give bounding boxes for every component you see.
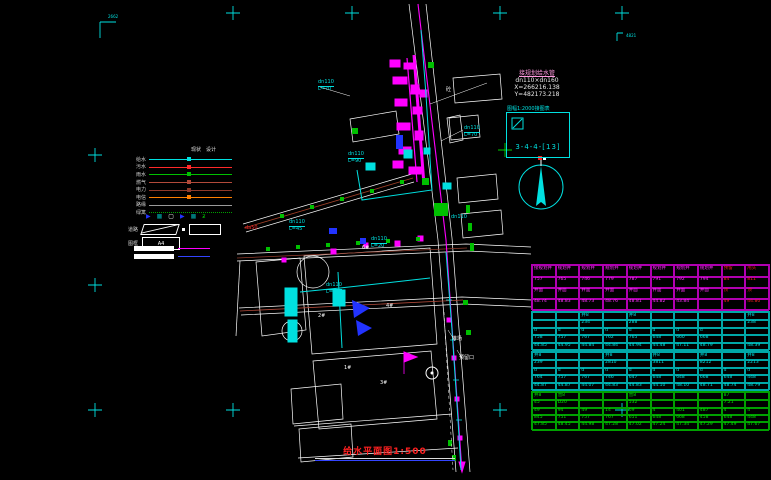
table-cell: 48.74 — [532, 298, 556, 311]
map-label-line: da50 — [245, 226, 258, 232]
legend-line-sample — [149, 190, 232, 191]
legend-row: 电信 — [128, 194, 232, 202]
map-label: dn110L=70 — [464, 126, 480, 138]
map-label: dn110L=90 — [348, 152, 364, 164]
annotation-line: dn110×dn160 — [478, 77, 596, 84]
legend-magenta-line — [178, 248, 210, 249]
legend-line-sample — [149, 174, 232, 175]
table-cell: 47.67 — [745, 421, 769, 430]
table-cell: 48.10 — [674, 382, 698, 391]
table-cell — [698, 298, 722, 311]
table-cell: 44.98 — [579, 421, 603, 430]
table-row: 4994491469440148744 — [532, 407, 769, 414]
map-label-line: 3# — [380, 381, 387, 387]
table-cell: 44.84 — [603, 342, 627, 351]
table-row: 48.7448.8348.7348.7648.8144.8243.844944.… — [532, 298, 769, 309]
legend-label: 电力 — [128, 187, 149, 193]
legend-label: 污水 — [128, 164, 149, 170]
map-label: dn110L=45 — [289, 220, 305, 232]
table-cell: 48.73 — [579, 298, 603, 311]
table-row: 47.8548.4544.9847.2847.0247.2447.3447.29… — [532, 421, 769, 428]
map-label: 3# — [380, 381, 387, 387]
map-label-line: 2# — [318, 314, 325, 320]
legend-header-existing: 现状 — [191, 146, 201, 153]
legend-label: 燃气 — [128, 180, 149, 186]
table-cell: 47.85 — [532, 421, 556, 430]
legend-row: 污水 — [128, 164, 232, 172]
table-cell: 48.45 — [556, 421, 580, 430]
table-row: 44.8544.9544.8444.8444.9444.4847.1148.79… — [532, 342, 769, 349]
table-row: 接规划井规划井规划井规划井规划井规划井规划井规划井预留甩头 — [532, 265, 769, 276]
table-row: 845751757767651648668458648448 — [532, 414, 769, 421]
map-label-line: 预留口 — [459, 356, 474, 362]
map-label-line: 堆场 — [452, 337, 462, 343]
map-label-line: L=45 — [326, 290, 342, 296]
table-cell: 44.84 — [579, 342, 603, 351]
legend-label: 电信 — [128, 195, 149, 201]
equals-mark — [182, 228, 185, 231]
cad-canvas[interactable]: 2662 4821 接规划给水管 dn110×dn160 X=266216.13… — [0, 0, 771, 480]
legend-header-design: 设计 — [206, 146, 216, 153]
box-symbol-icon: ▢ — [168, 214, 174, 220]
table-cell: 44.07 — [579, 382, 603, 391]
legend-marker — [187, 157, 191, 161]
vegetation-symbols — [266, 62, 474, 461]
grid-box-title: 图幅1:2000接图表 — [507, 105, 569, 112]
map-label-line: 1# — [344, 366, 351, 372]
table-cell: 47.24 — [651, 421, 675, 430]
map-label-line: 砼 — [446, 88, 451, 94]
legend-marker — [187, 195, 191, 199]
map-label-line: L=90 — [348, 159, 364, 165]
road-legend-label: 道路 — [128, 226, 138, 233]
legend-road-row: 道路 — [128, 224, 221, 235]
table-group: 接规划井规划井规划井规划井规划井规划井规划井规划井预留甩头75776574677… — [531, 264, 770, 310]
table-cell: 47.49 — [722, 421, 746, 430]
map-label-line: 4# — [386, 304, 393, 310]
legend-marker — [187, 188, 191, 192]
legend-marker — [187, 180, 191, 184]
legend-marker — [187, 165, 191, 169]
map-label: 堆场 — [452, 337, 462, 343]
leader-lines — [320, 83, 487, 470]
annotation-line: X=266216.138 — [478, 84, 596, 91]
map-label: dn110 — [451, 215, 467, 221]
utility-table: 接规划井规划井规划井规划井规划井规划井规划井规划井预留甩头75776574677… — [531, 264, 770, 431]
sheet-edge-label: 4821 — [626, 34, 636, 38]
legend-solid-bar — [134, 246, 174, 251]
table-cell: 48.79 — [745, 382, 769, 391]
plant-symbol-icon: ƶ — [202, 214, 205, 220]
table-row: 井8井8井8井8井8 — [532, 352, 769, 359]
title-underline-blue — [315, 460, 455, 461]
map-label: 2# — [318, 314, 325, 320]
table-cell: 47.28 — [603, 421, 627, 430]
table-row: 75776574677978779179279484811 — [532, 276, 769, 287]
annotation-line: 接规划给水管 — [478, 70, 596, 77]
table-cell: 49 — [722, 298, 746, 311]
table-cell — [722, 342, 746, 351]
map-label: 砼 — [446, 88, 451, 94]
map-label-line: 6# — [362, 246, 369, 252]
legend-line-sample — [149, 159, 232, 160]
north-arrow-icon — [519, 156, 563, 209]
table-row: 2392810381182122213 — [532, 359, 769, 366]
map-label: da50 — [245, 226, 258, 232]
legend-row: 雨水 — [128, 171, 232, 179]
table-group: 井8井8井8234288238dddddddd75875776776276564… — [531, 311, 770, 350]
table-row: 井8营8营887 — [532, 392, 769, 399]
table-cell: 44.48 — [651, 342, 675, 351]
legend-label: 雨水 — [128, 172, 149, 178]
table-cell: 47.29 — [698, 421, 722, 430]
table-cell: 48.79 — [698, 342, 722, 351]
detail-callout-circle — [426, 367, 438, 379]
existing-road-icon — [140, 224, 180, 235]
table-cell: 44.82 — [651, 298, 675, 311]
table-cell: 44.87 — [532, 382, 556, 391]
table-row: 45D205327.21 — [532, 399, 769, 406]
table-cell: 44.87 — [556, 382, 580, 391]
map-label-line: L=20 — [371, 244, 387, 250]
table-cell: 44.80 — [745, 298, 769, 311]
table-row: 758757767762765648660668 — [532, 334, 769, 341]
legend-label: 给水 — [128, 157, 149, 163]
table-row: dddddddd — [532, 327, 769, 334]
table-cell: 47.11 — [674, 342, 698, 351]
legend-line-sample — [149, 205, 232, 206]
table-cell: 44.95 — [556, 342, 580, 351]
grid-reference-box: 图幅1:2000接图表 3-4-4-[13] — [506, 112, 570, 158]
table-row: 井面井面井面井面井面井面井面井面顶顶 — [532, 287, 769, 298]
map-label-line: dn110 — [451, 215, 467, 221]
table-cell: 44.10 — [651, 382, 675, 391]
legend: 给水污水雨水燃气电力电信路缘绿篱 — [128, 156, 232, 217]
valve-icon: ■ — [191, 214, 197, 220]
legend-row: 电力 — [128, 186, 232, 194]
annotation-line: Y=482173.218 — [478, 91, 596, 98]
legend-row: 给水 — [128, 156, 232, 164]
table-cell: 48.81 — [627, 298, 651, 311]
table-cell: 44.83 — [627, 382, 651, 391]
drawing-title: 给水平面图1:500 — [315, 444, 455, 461]
legend-marker — [187, 172, 191, 176]
title-underline — [315, 458, 455, 459]
map-label: 1# — [344, 366, 351, 372]
table-cell: 48.74 — [722, 382, 746, 391]
legend-blue-line — [178, 256, 210, 257]
table-row: 44.8744.8744.0744.8344.8344.1048.1048.71… — [532, 382, 769, 389]
legend-line-sample — [149, 167, 232, 168]
legend-line-sample — [149, 197, 232, 198]
table-cell: 48.76 — [603, 298, 627, 311]
grid-box-code: 3-4-4-[13] — [507, 143, 569, 151]
table-group: 井8营8营88745D205327.2149944914694401487448… — [531, 391, 770, 430]
map-label: dn110L=45 — [326, 283, 342, 295]
connection-annotation: 接规划给水管 dn110×dn160 X=266216.138 Y=482173… — [478, 70, 596, 98]
legend-row: 燃气 — [128, 179, 232, 187]
planned-road-icon — [189, 224, 221, 235]
table-cell: 48.39 — [745, 342, 769, 351]
legend-row: 路缘 — [128, 202, 232, 210]
table-cell: 44.85 — [532, 342, 556, 351]
drawing-title-text: 给水平面图1:500 — [315, 444, 455, 457]
sheet-corner-label: 2662 — [108, 15, 118, 19]
map-label: dn110L=20 — [371, 237, 387, 249]
map-label: 预留口 — [459, 356, 474, 362]
table-cell: 48.83 — [556, 298, 580, 311]
legend-symbol-row: ▶ ■ ▢ ▶ ■ ƶ — [146, 214, 205, 220]
map-label-line: L=70 — [318, 87, 334, 93]
table-cell: 43.84 — [674, 298, 698, 311]
map-label: 4# — [386, 304, 393, 310]
hatch-square-icon — [511, 117, 525, 131]
legend-label: 路缘 — [128, 202, 149, 208]
table-cell: 47.02 — [627, 421, 651, 430]
map-label-line: L=45 — [289, 227, 305, 233]
table-cell: 47.34 — [674, 421, 698, 430]
table-row: dddddddddd — [532, 367, 769, 374]
map-label: 6# — [362, 246, 369, 252]
map-label: dn110L=70 — [318, 80, 334, 92]
table-row: 井8井8井8 — [532, 312, 769, 319]
table-cell: 44.83 — [603, 382, 627, 391]
legend-solid-bar — [134, 254, 174, 259]
legend-line-sample — [149, 182, 232, 183]
table-cell: 48.71 — [698, 382, 722, 391]
flow-arrow-icon: ▶ — [146, 214, 151, 220]
table-cell: 44.94 — [627, 342, 651, 351]
table-row: 764757767746647648648668648448 — [532, 374, 769, 381]
table-group: 井8井8井8井8井82392810381182122213dddddddddd7… — [531, 351, 770, 390]
flow-arrow-icon: ▶ — [180, 214, 185, 220]
map-label-line: L=70 — [464, 133, 480, 139]
valve-icon: ■ — [157, 214, 163, 220]
table-row: 234288238 — [532, 319, 769, 326]
